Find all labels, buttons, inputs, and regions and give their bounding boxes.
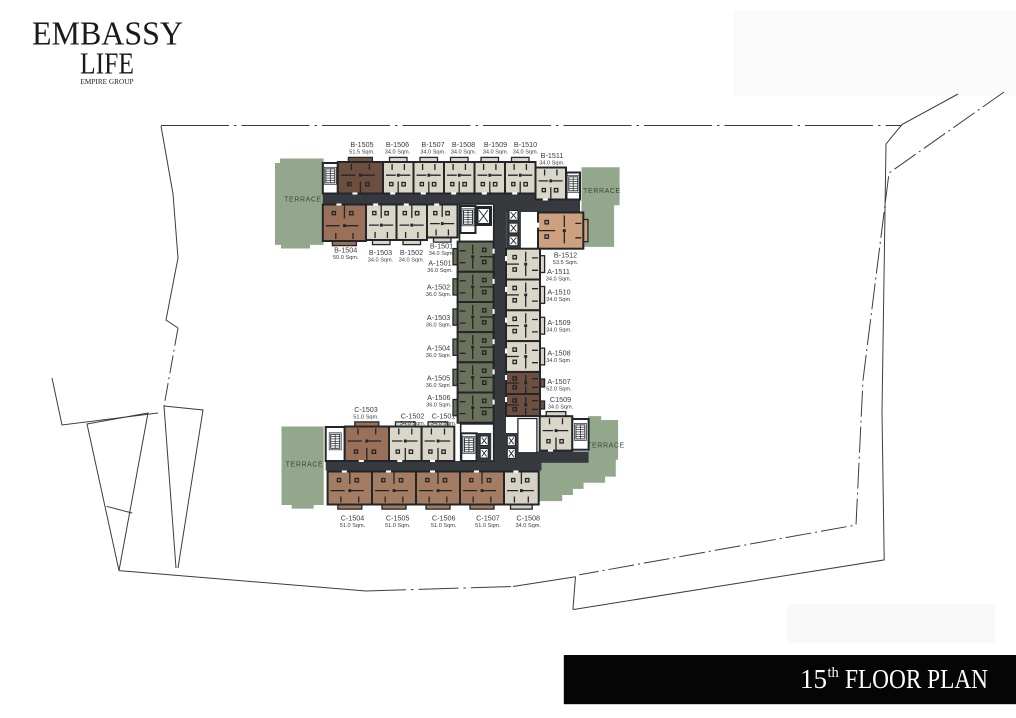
svg-text:B-1512: B-1512 <box>554 251 577 260</box>
svg-text:34.0 Sqm.: 34.0 Sqm. <box>515 523 541 529</box>
svg-text:34.0 Sqm.: 34.0 Sqm. <box>546 328 572 334</box>
svg-text:C-1505: C-1505 <box>386 514 410 523</box>
svg-text:34.0 Sqm.: 34.0 Sqm. <box>546 277 572 283</box>
svg-text:C1509: C1509 <box>550 395 571 404</box>
svg-text:A-1501: A-1501 <box>428 259 451 268</box>
svg-text:A-1504: A-1504 <box>427 344 450 353</box>
svg-text:A-1508: A-1508 <box>547 349 570 358</box>
svg-text:B-1501: B-1501 <box>430 242 453 251</box>
svg-text:53.5 Sqm.: 53.5 Sqm. <box>553 260 579 266</box>
svg-text:51.0 Sqm.: 51.0 Sqm. <box>353 415 379 421</box>
svg-text:36.0 Sqm.: 36.0 Sqm. <box>427 268 453 274</box>
svg-text:EMPIRE GROUP: EMPIRE GROUP <box>81 77 134 86</box>
svg-text:34.0 Sqm.: 34.0 Sqm. <box>368 258 394 264</box>
svg-text:34.0 Sqm.: 34.0 Sqm. <box>429 251 455 257</box>
svg-text:A-1503: A-1503 <box>427 313 450 322</box>
svg-text:34.0 Sqm.: 34.0 Sqm. <box>539 161 565 167</box>
svg-text:34.0 Sqm.: 34.0 Sqm. <box>385 150 411 156</box>
svg-text:B-1511: B-1511 <box>541 151 564 160</box>
svg-text:A-1505: A-1505 <box>427 374 450 383</box>
svg-text:36.0 Sqm.: 36.0 Sqm. <box>426 323 452 329</box>
svg-text:B-1509: B-1509 <box>484 140 507 149</box>
svg-text:50.0 Sqm.: 50.0 Sqm. <box>333 255 359 261</box>
svg-text:B-1508: B-1508 <box>452 140 475 149</box>
svg-text:A-1506: A-1506 <box>427 393 450 402</box>
svg-text:36.0 Sqm.: 36.0 Sqm. <box>426 292 452 298</box>
svg-text:TERRACE: TERRACE <box>284 197 322 204</box>
svg-text:B-1502: B-1502 <box>400 248 423 257</box>
svg-text:TERRACE: TERRACE <box>587 443 625 450</box>
svg-text:51.5 Sqm.: 51.5 Sqm. <box>349 150 375 156</box>
svg-text:34.0 Sqm.: 34.0 Sqm. <box>513 150 539 156</box>
svg-text:A-1502: A-1502 <box>427 283 450 292</box>
svg-text:51.0 Sqm.: 51.0 Sqm. <box>385 523 411 529</box>
svg-text:36.0 Sqm.: 36.0 Sqm. <box>426 383 452 389</box>
svg-text:TERRACE: TERRACE <box>583 188 621 195</box>
svg-text:34.0 Sqm.: 34.0 Sqm. <box>483 150 509 156</box>
svg-text:FLOOR PLAN: FLOOR PLAN <box>845 664 988 694</box>
svg-text:34.0 Sqm.: 34.0 Sqm. <box>451 150 477 156</box>
svg-text:B-1503: B-1503 <box>369 248 392 257</box>
svg-text:34.0 Sqm.: 34.0 Sqm. <box>548 405 574 411</box>
svg-text:A-1507: A-1507 <box>547 377 570 386</box>
svg-text:C-1503: C-1503 <box>354 405 378 414</box>
svg-text:C-1508: C-1508 <box>516 514 540 523</box>
svg-text:th: th <box>828 665 840 681</box>
svg-text:34.0 Sqm.: 34.0 Sqm. <box>400 421 426 427</box>
svg-text:A-1511: A-1511 <box>547 267 570 276</box>
svg-text:34.0 Sqm.: 34.0 Sqm. <box>546 358 572 364</box>
svg-text:C-1501: C-1501 <box>432 412 456 421</box>
svg-text:B-1505: B-1505 <box>350 140 373 149</box>
svg-text:B-1506: B-1506 <box>386 140 409 149</box>
svg-text:34.0 Sqm.: 34.0 Sqm. <box>431 421 457 427</box>
svg-text:34.0 Sqm.: 34.0 Sqm. <box>420 150 446 156</box>
svg-text:B-1507: B-1507 <box>421 140 444 149</box>
svg-text:34.0 Sqm.: 34.0 Sqm. <box>399 258 425 264</box>
svg-text:C-1507: C-1507 <box>476 514 500 523</box>
svg-text:A-1510: A-1510 <box>547 288 570 297</box>
svg-text:C-1506: C-1506 <box>432 514 456 523</box>
svg-text:A-1509: A-1509 <box>547 318 570 327</box>
svg-text:52.0 Sqm.: 52.0 Sqm. <box>546 387 572 393</box>
svg-text:B-1504: B-1504 <box>334 246 357 255</box>
svg-text:B-1510: B-1510 <box>514 140 537 149</box>
svg-text:C-1504: C-1504 <box>341 514 365 523</box>
svg-text:34.0 Sqm.: 34.0 Sqm. <box>546 297 572 303</box>
svg-text:15: 15 <box>800 664 827 694</box>
svg-text:36.0 Sqm.: 36.0 Sqm. <box>426 403 452 409</box>
svg-text:TERRACE: TERRACE <box>286 462 324 469</box>
svg-text:51.0 Sqm.: 51.0 Sqm. <box>475 523 501 529</box>
svg-text:51.0 Sqm.: 51.0 Sqm. <box>431 523 457 529</box>
svg-text:LIFE: LIFE <box>80 46 134 81</box>
svg-text:36.0 Sqm.: 36.0 Sqm. <box>426 353 452 359</box>
svg-text:C-1502: C-1502 <box>401 412 425 421</box>
svg-text:51.0 Sqm.: 51.0 Sqm. <box>340 523 366 529</box>
